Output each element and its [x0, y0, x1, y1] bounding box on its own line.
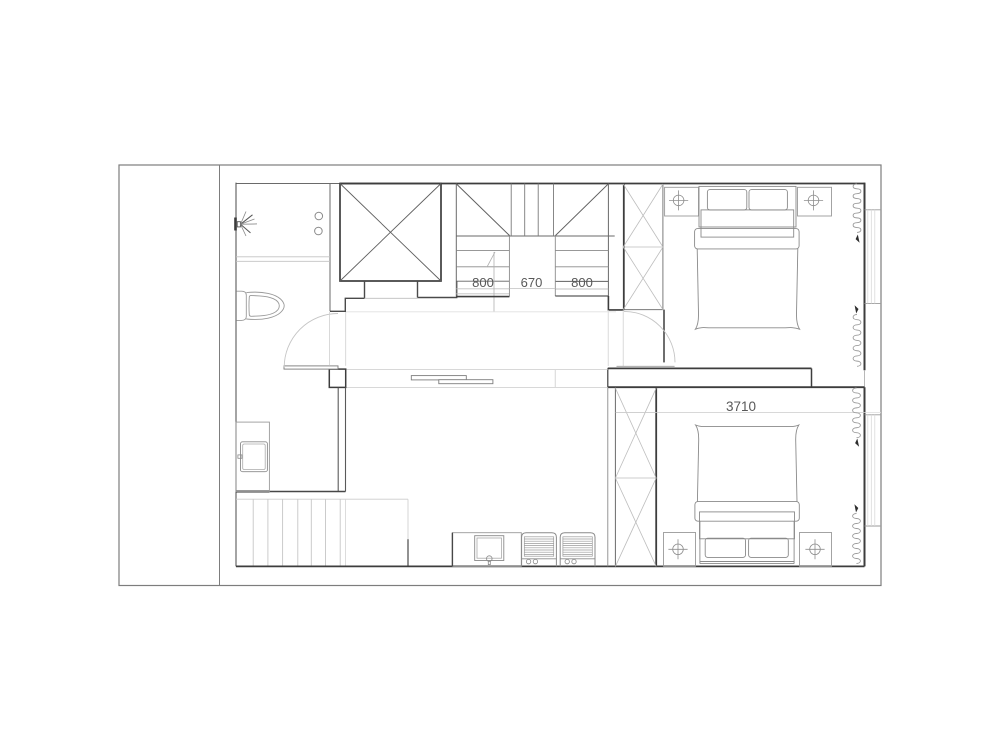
- svg-text:670: 670: [521, 275, 543, 290]
- svg-text:3710: 3710: [726, 399, 756, 414]
- svg-text:800: 800: [571, 275, 593, 290]
- svg-text:800: 800: [472, 275, 494, 290]
